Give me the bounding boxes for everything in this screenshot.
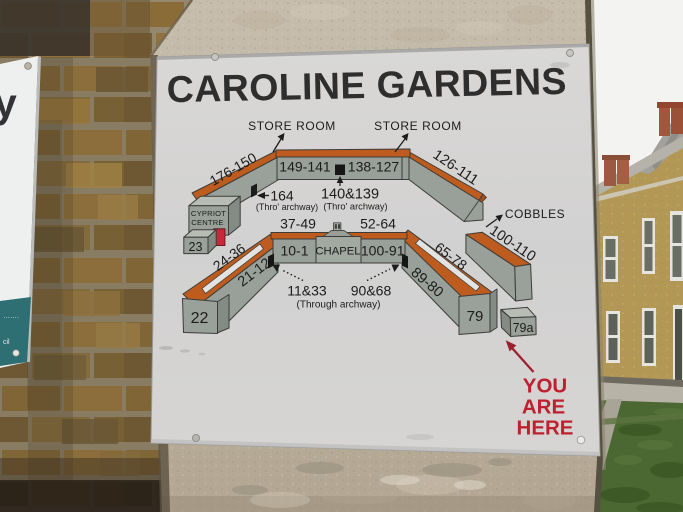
svg-text:HERE: HERE — [517, 417, 574, 440]
svg-text:…….: ……. — [3, 313, 19, 320]
svg-text:y: y — [0, 80, 17, 126]
svg-text:COBBLES: COBBLES — [505, 207, 565, 221]
svg-text:CYPRIOT: CYPRIOT — [191, 209, 226, 218]
svg-text:37-49: 37-49 — [280, 216, 316, 232]
svg-text:(Thro' archway): (Thro' archway) — [323, 202, 387, 212]
svg-text:YOU: YOU — [523, 375, 567, 398]
svg-text:79a: 79a — [513, 321, 534, 335]
svg-text:11&33: 11&33 — [287, 283, 327, 299]
svg-text:ARE: ARE — [522, 396, 565, 419]
svg-text:22: 22 — [191, 310, 209, 327]
svg-text:(Thro' archway): (Thro' archway) — [256, 202, 318, 212]
svg-text:52-64: 52-64 — [360, 216, 396, 232]
svg-text:100-91: 100-91 — [361, 243, 405, 259]
svg-text:140&139: 140&139 — [321, 186, 379, 202]
svg-text:149-141: 149-141 — [279, 158, 331, 174]
svg-text:23: 23 — [189, 240, 203, 254]
svg-text:138-127: 138-127 — [348, 158, 400, 174]
svg-text:CAROLINE GARDENS: CAROLINE GARDENS — [166, 60, 567, 110]
svg-text:STORE ROOM: STORE ROOM — [248, 119, 336, 133]
svg-text:10-1: 10-1 — [280, 243, 308, 259]
svg-text:90&68: 90&68 — [351, 283, 392, 299]
svg-text:(Through archway): (Through archway) — [297, 300, 381, 311]
svg-text:cil: cil — [3, 339, 10, 346]
svg-text:CHAPEL: CHAPEL — [315, 246, 360, 258]
svg-text:79: 79 — [467, 308, 484, 325]
svg-text:STORE ROOM: STORE ROOM — [374, 119, 462, 133]
svg-text:CENTRE: CENTRE — [191, 218, 223, 227]
